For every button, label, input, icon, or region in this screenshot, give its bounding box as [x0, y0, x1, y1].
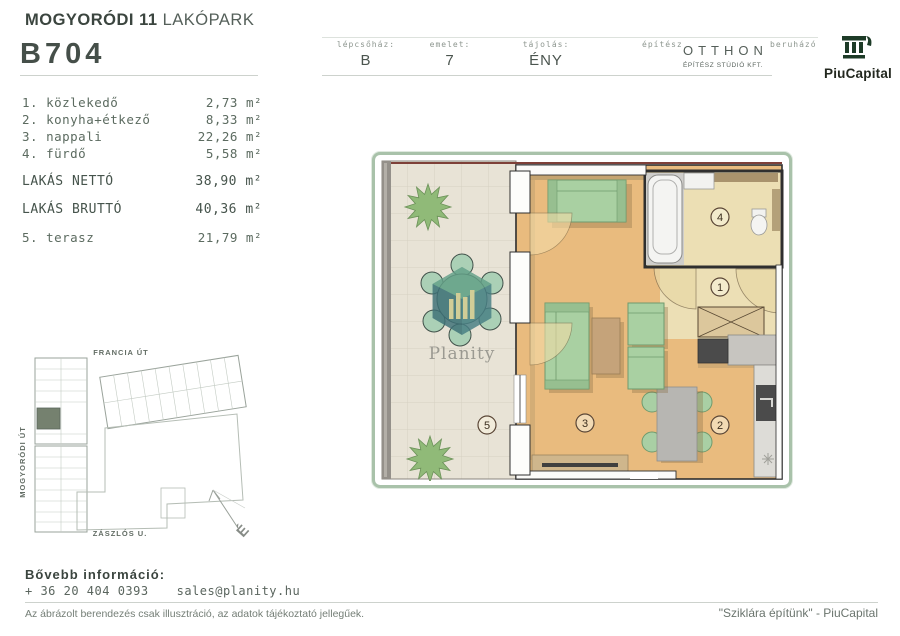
sink	[684, 173, 714, 189]
developer-label: beruházó	[770, 40, 817, 49]
email-link[interactable]: sales@planity.hu	[177, 584, 301, 598]
footer-contact: + 36 20 404 0393sales@planity.hu	[25, 584, 328, 598]
footer-info-label: Bővebb információ:	[25, 567, 165, 582]
room-area: 2,73 m²	[206, 94, 262, 111]
gross-area-row: LAKÁS BRUTTÓ 40,36 m²	[22, 201, 262, 218]
svg-text:1: 1	[717, 282, 723, 294]
room-name: 4. fürdő	[22, 145, 86, 162]
divider	[25, 602, 878, 603]
floorplan-sheet: MOGYORÓDI 11 LAKÓPARK B704 lépcsőház: B …	[0, 0, 900, 636]
field-orientation-label: tájolás:	[503, 40, 589, 49]
room-row: 1. közlekedő 2,73 m²	[22, 94, 262, 111]
room-row: 2. konyha+étkező 8,33 m²	[22, 111, 262, 128]
dining-table	[657, 387, 697, 461]
armchair	[628, 347, 664, 389]
field-staircase-label: lépcsőház:	[323, 40, 409, 49]
terrace-row: 5. terasz 21,79 m²	[22, 229, 262, 246]
room-area: 22,26 m²	[198, 128, 262, 145]
floor-plan: Planity	[372, 152, 792, 488]
developer-logo: PiuCapital	[824, 36, 886, 81]
coffee-table	[592, 318, 620, 374]
kitchen-counter	[728, 335, 782, 365]
terrace-label: 5. terasz	[22, 229, 94, 246]
planity-watermark-icon: Planity	[429, 267, 496, 364]
marker-living: 3	[576, 414, 594, 432]
svg-text:5: 5	[484, 420, 490, 432]
room-row: 3. nappali 22,26 m²	[22, 128, 262, 145]
field-staircase-value: B	[323, 52, 409, 69]
terrace-area: 21,79 m²	[198, 229, 262, 246]
piucapital-icon	[835, 36, 875, 60]
divider	[322, 37, 818, 38]
architect-sub: ÉPÍTÉSZ STÚDIÓ KFT.	[683, 62, 763, 69]
svg-text:2: 2	[717, 420, 723, 432]
project-title: MOGYORÓDI 11 LAKÓPARK	[25, 11, 254, 30]
site-map: FRANCIA ÚT MOGYORÓDI ÚT ZÁSZLÓS U. É	[15, 342, 267, 569]
developer-name: PiuCapital	[824, 66, 886, 81]
net-area: 38,90 m²	[195, 173, 262, 190]
field-floor-label: emelet:	[407, 40, 493, 49]
room-name: 1. közlekedő	[22, 94, 118, 111]
field-staircase: lépcsőház: B	[323, 40, 409, 69]
gross-area: 40,36 m²	[195, 201, 262, 218]
unit-code: B704	[20, 38, 105, 71]
field-floor-value: 7	[407, 52, 493, 69]
watermark-label: Planity	[429, 344, 496, 364]
armchair	[628, 303, 664, 345]
field-floor: emelet: 7	[407, 40, 493, 69]
room-name: 2. konyha+étkező	[22, 111, 150, 128]
divider	[322, 75, 772, 76]
net-label: LAKÁS NETTÓ	[22, 173, 114, 190]
fridge	[698, 339, 728, 363]
room-row: 4. fürdő 5,58 m²	[22, 145, 262, 162]
disclaimer-text: Az ábrázolt berendezés csak illusztráció…	[25, 608, 364, 620]
compass-north-label: É	[233, 522, 252, 541]
field-orientation-value: ÉNY	[503, 52, 589, 69]
street-bottom-label: ZÁSZLÓS U.	[93, 529, 148, 538]
gross-label: LAKÁS BRUTTÓ	[22, 201, 122, 218]
svg-text:3: 3	[582, 418, 588, 430]
marker-kitchen: 2	[711, 416, 729, 434]
marker-hallway: 1	[711, 278, 729, 296]
architect-block: OTTHON ÉPÍTÉSZ STÚDIÓ KFT.	[683, 43, 763, 69]
project-title-bold: MOGYORÓDI 11	[25, 11, 158, 29]
architect-label: építész	[642, 40, 683, 49]
north-compass-icon: É	[209, 490, 253, 541]
street-top-label: FRANCIA ÚT	[93, 348, 149, 357]
net-area-row: LAKÁS NETTÓ 38,90 m²	[22, 173, 262, 190]
project-title-rest: LAKÓPARK	[158, 11, 255, 29]
room-area: 5,58 m²	[206, 145, 262, 162]
room-area: 8,33 m²	[206, 111, 262, 128]
marker-terrace: 5	[478, 416, 496, 434]
phone-number[interactable]: + 36 20 404 0393	[25, 584, 149, 598]
room-list: 1. közlekedő 2,73 m² 2. konyha+étkező 8,…	[22, 94, 262, 246]
svg-text:4: 4	[717, 212, 723, 224]
room-name: 3. nappali	[22, 128, 102, 145]
highlighted-unit[interactable]	[37, 408, 60, 429]
marker-bathroom: 4	[711, 208, 729, 226]
street-left-label: MOGYORÓDI ÚT	[18, 426, 27, 498]
divider	[20, 75, 258, 76]
field-orientation: tájolás: ÉNY	[503, 40, 589, 69]
architect-name: OTTHON	[683, 43, 763, 58]
footer-quote: "Sziklára építünk" - PiuCapital	[719, 606, 878, 620]
